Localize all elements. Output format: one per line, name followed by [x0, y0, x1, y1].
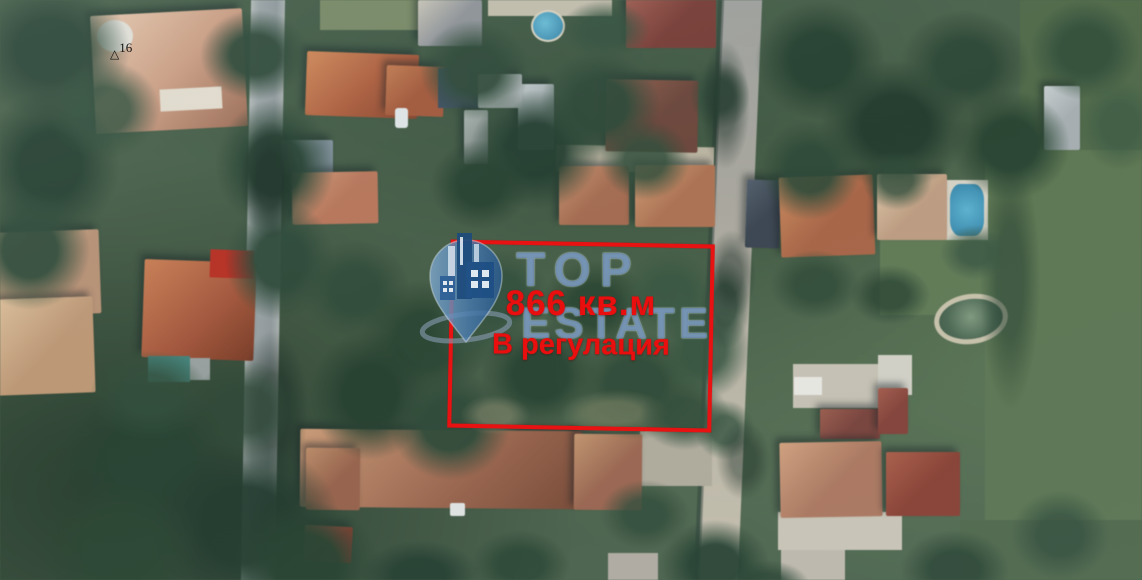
- house-roof: [779, 441, 882, 518]
- survey-marker-16: △16: [110, 40, 132, 62]
- tree-canopy: [430, 140, 530, 230]
- survey-marker-number: 16: [119, 40, 132, 55]
- van: [450, 503, 465, 516]
- plot-regulation-status-label: В регулация: [450, 330, 712, 361]
- road-shadow: [240, 120, 300, 240]
- tree-canopy: [940, 225, 1010, 280]
- tree-canopy: [470, 530, 570, 580]
- porch: [159, 86, 222, 111]
- satellite-listing-image: △16: [0, 0, 1142, 580]
- house-roof: [878, 388, 908, 434]
- tree-canopy: [200, 10, 310, 100]
- hedge: [980, 150, 1040, 410]
- canopy: [794, 377, 822, 395]
- car: [395, 108, 408, 128]
- tree-canopy: [850, 265, 930, 325]
- tree-canopy: [760, 120, 860, 220]
- tree-canopy: [600, 120, 690, 200]
- tree-canopy: [360, 540, 480, 580]
- plot-area-label: 866 кв.м: [450, 286, 712, 321]
- road-shadow: [700, 40, 750, 170]
- tree-canopy: [50, 60, 160, 160]
- driveway: [778, 512, 902, 550]
- tree-canopy: [770, 250, 860, 320]
- tree-canopy: [1010, 490, 1110, 580]
- triangle-marker-icon: △: [110, 47, 119, 61]
- house-roof: [0, 296, 96, 395]
- garden-rows: [320, 0, 425, 30]
- road-shadow: [716, 420, 771, 500]
- tree-canopy: [862, 150, 932, 210]
- house-roof: [820, 409, 880, 439]
- house-roof: [886, 452, 960, 516]
- tree-canopy: [600, 480, 690, 550]
- tree-canopy: [190, 360, 300, 460]
- outbuilding: [608, 553, 658, 580]
- tree-canopy: [560, 0, 650, 60]
